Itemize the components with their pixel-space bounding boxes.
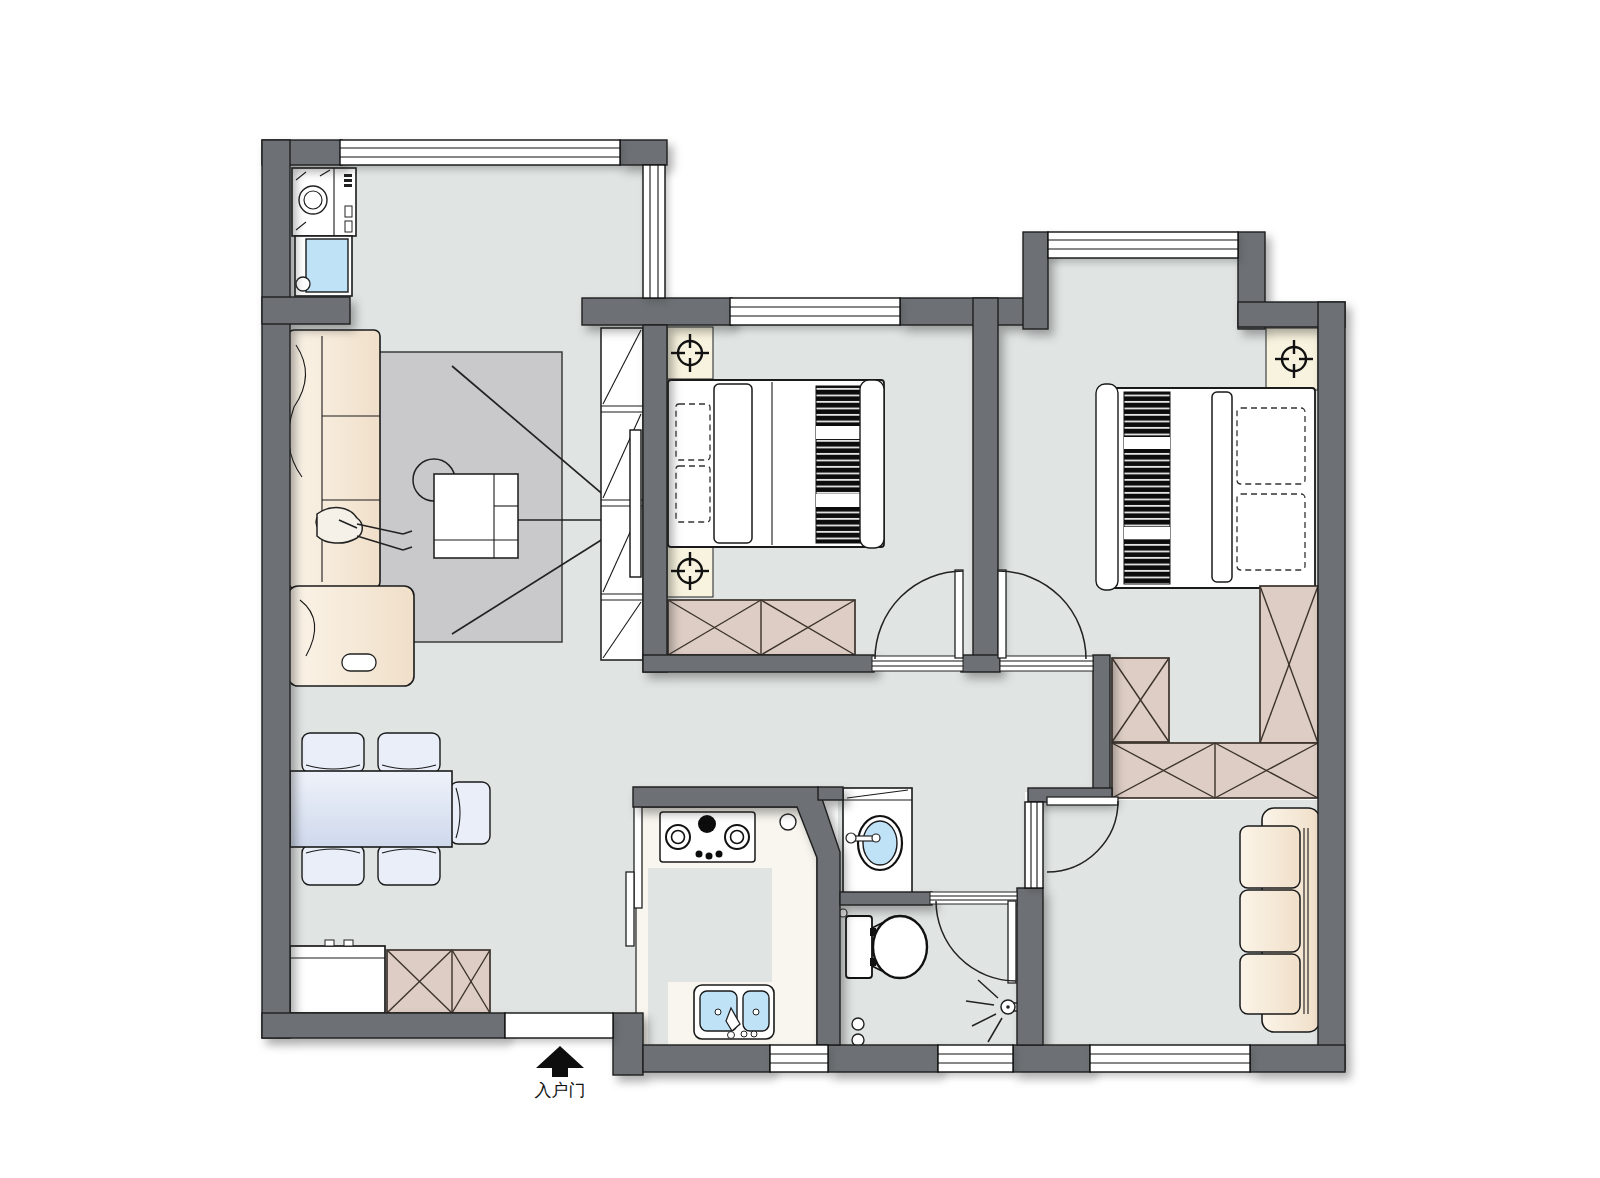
floor-plan: 入户门 bbox=[0, 0, 1600, 1178]
wall-segment bbox=[1023, 232, 1048, 329]
wall-segment bbox=[262, 1013, 505, 1038]
door-threshold bbox=[930, 892, 1017, 904]
wall-segment bbox=[1093, 655, 1110, 800]
dining-chair bbox=[450, 782, 490, 844]
entrance-arrow-icon bbox=[536, 1046, 584, 1077]
wall-segment bbox=[900, 298, 1025, 325]
wardrobe bbox=[1112, 743, 1318, 798]
kitchen-sink bbox=[694, 985, 774, 1039]
wall-segment bbox=[828, 1045, 938, 1072]
pillow bbox=[1237, 408, 1305, 484]
wall-segment bbox=[1013, 1045, 1090, 1072]
shoe-cabinet bbox=[387, 950, 490, 1013]
wall-segment bbox=[262, 297, 350, 324]
tv-panel bbox=[630, 430, 641, 577]
headboard bbox=[714, 384, 752, 543]
washing-machine bbox=[292, 168, 356, 236]
wall-segment bbox=[643, 1045, 770, 1072]
dining-table bbox=[290, 771, 452, 847]
window bbox=[1048, 232, 1238, 258]
entrance-opening bbox=[505, 1013, 613, 1038]
blanket-drape bbox=[1096, 384, 1118, 590]
double-bed bbox=[668, 380, 884, 548]
wall-segment bbox=[643, 655, 874, 672]
striped-blanket bbox=[1124, 392, 1170, 584]
wall-segment bbox=[1318, 302, 1345, 1070]
window bbox=[730, 298, 900, 325]
sofa-cushion bbox=[1240, 826, 1300, 888]
wardrobe bbox=[1112, 658, 1169, 742]
double-bed bbox=[1096, 384, 1315, 590]
study-room-sofa bbox=[1240, 808, 1320, 1032]
coffee-table bbox=[434, 474, 518, 558]
wall-segment bbox=[620, 140, 667, 165]
window bbox=[1025, 802, 1043, 888]
wall-segment bbox=[643, 325, 667, 672]
kitchen-floor bbox=[648, 982, 668, 1045]
window bbox=[770, 1045, 828, 1072]
wall-segment bbox=[262, 140, 290, 1038]
sofa-cushion bbox=[1240, 890, 1300, 952]
headboard bbox=[1212, 392, 1232, 582]
wall-segment bbox=[1017, 888, 1043, 1045]
pillow bbox=[676, 404, 710, 460]
laundry-sink bbox=[295, 236, 352, 296]
wall-segment bbox=[613, 1013, 643, 1075]
console-cabinet bbox=[290, 940, 385, 1013]
floor-region bbox=[1048, 256, 1238, 330]
wardrobe bbox=[668, 600, 855, 655]
striped-blanket bbox=[816, 386, 864, 543]
gas-stove bbox=[660, 812, 755, 862]
wardrobe bbox=[1260, 586, 1318, 743]
sofa-cushion bbox=[1240, 954, 1300, 1014]
sliding-door-panel bbox=[634, 806, 642, 908]
entrance-label: 入户门 bbox=[535, 1080, 586, 1100]
door-threshold bbox=[1000, 656, 1093, 671]
window bbox=[643, 165, 665, 298]
floor-plan-page: 入户门 bbox=[0, 0, 1600, 1178]
dining-chair bbox=[378, 845, 440, 885]
wok-ring bbox=[698, 815, 716, 833]
wall-segment bbox=[961, 655, 1000, 672]
dining-chair bbox=[378, 733, 440, 773]
wall-segment bbox=[582, 298, 732, 325]
dining-chair bbox=[302, 845, 364, 885]
window bbox=[938, 1045, 1013, 1072]
floor-region bbox=[912, 768, 1025, 894]
tv-wall-cabinet bbox=[601, 328, 643, 660]
wall-segment bbox=[973, 298, 998, 657]
laundry-corner bbox=[292, 168, 356, 296]
entrance-mark: 入户门 bbox=[535, 1046, 586, 1100]
pillow bbox=[1237, 494, 1305, 570]
window bbox=[340, 140, 620, 165]
drain-hole bbox=[780, 814, 796, 830]
floor-drain bbox=[852, 1034, 864, 1046]
window bbox=[1090, 1045, 1250, 1072]
dining-chair bbox=[302, 733, 364, 773]
blanket-drape bbox=[860, 380, 884, 548]
wall-segment bbox=[818, 787, 843, 800]
kitchen-floor bbox=[648, 868, 772, 982]
wall-segment bbox=[840, 892, 932, 905]
washbasin bbox=[843, 788, 912, 894]
entry-cabinets bbox=[290, 940, 490, 1013]
pillow bbox=[676, 466, 710, 522]
floor-drain bbox=[852, 1018, 864, 1030]
bolster-pillow bbox=[342, 654, 376, 671]
door-threshold bbox=[872, 656, 963, 671]
wall-segment bbox=[1250, 1045, 1345, 1072]
sliding-door-panel bbox=[626, 872, 634, 946]
